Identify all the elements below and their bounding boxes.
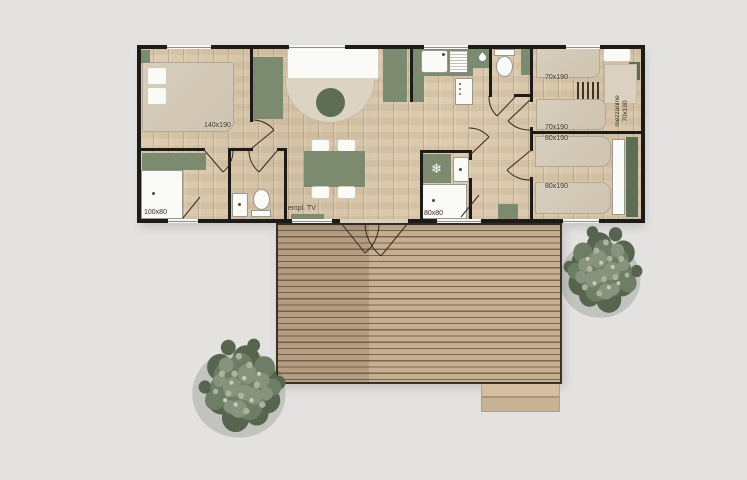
rug-accent-circle	[316, 88, 345, 117]
window	[292, 219, 332, 223]
oven	[455, 78, 473, 105]
cabinet	[253, 57, 283, 119]
wall	[530, 177, 533, 221]
basin-drain	[238, 203, 241, 206]
bed-size-label: 140x190	[204, 122, 231, 129]
window	[168, 219, 198, 223]
hall-cabinet	[498, 204, 518, 219]
pillow	[603, 48, 631, 62]
wall	[469, 150, 472, 160]
window	[563, 219, 599, 223]
chair	[337, 186, 356, 199]
shower-drain	[152, 192, 155, 195]
window	[437, 219, 481, 223]
bed-size-label: 80x190	[545, 135, 568, 142]
toilet-tank	[494, 49, 515, 56]
floorplan-canvas: ❄ 140x190 100x80	[0, 0, 747, 480]
wall	[250, 45, 253, 122]
tv-spot-label: empl. TV	[288, 205, 316, 212]
tree	[556, 220, 652, 322]
faucet	[442, 53, 445, 56]
window	[424, 45, 468, 49]
shower-size-label: 100x80	[144, 209, 167, 216]
kitchen-counter-leg	[413, 76, 424, 102]
bed-size-label: 70x190	[545, 74, 568, 81]
window	[289, 45, 345, 49]
wall	[530, 45, 533, 102]
window	[566, 45, 600, 49]
dining-table	[304, 151, 365, 187]
deck-step	[481, 384, 560, 412]
wall	[231, 148, 253, 151]
pillow	[147, 87, 167, 105]
pillow	[147, 67, 167, 85]
wall	[284, 148, 287, 219]
cabinet	[383, 48, 407, 102]
oven-knobs	[459, 83, 461, 85]
wall	[137, 45, 141, 223]
bench-cabinet	[142, 153, 206, 170]
wall	[228, 148, 231, 219]
snowflake-icon: ❄	[431, 162, 442, 175]
window	[167, 45, 211, 49]
deck	[276, 223, 562, 384]
shower-size-label: 80x80	[424, 210, 443, 217]
wall	[410, 45, 413, 102]
toilet-tank	[251, 210, 271, 217]
bed-size-label: 70x190	[545, 124, 568, 131]
mezzanine-label: mezzanine 70x190	[597, 86, 647, 136]
shower-drain	[432, 199, 435, 202]
sink-drainer	[449, 50, 468, 73]
wall	[137, 148, 205, 151]
sofa	[287, 48, 379, 80]
chair	[311, 186, 330, 199]
wardrobe	[626, 137, 638, 217]
toilet-bowl	[253, 189, 270, 210]
french-door-opening	[340, 219, 408, 223]
wall	[420, 153, 423, 219]
toilet-bowl	[496, 56, 513, 77]
wall	[489, 45, 492, 97]
fridge: ❄	[422, 154, 451, 183]
basin-drain	[459, 168, 462, 171]
water-drop-icon	[478, 53, 488, 63]
shelf-column	[612, 139, 625, 215]
wall	[420, 150, 472, 153]
wall	[469, 178, 472, 219]
bed-size-label: 80x190	[545, 183, 568, 190]
